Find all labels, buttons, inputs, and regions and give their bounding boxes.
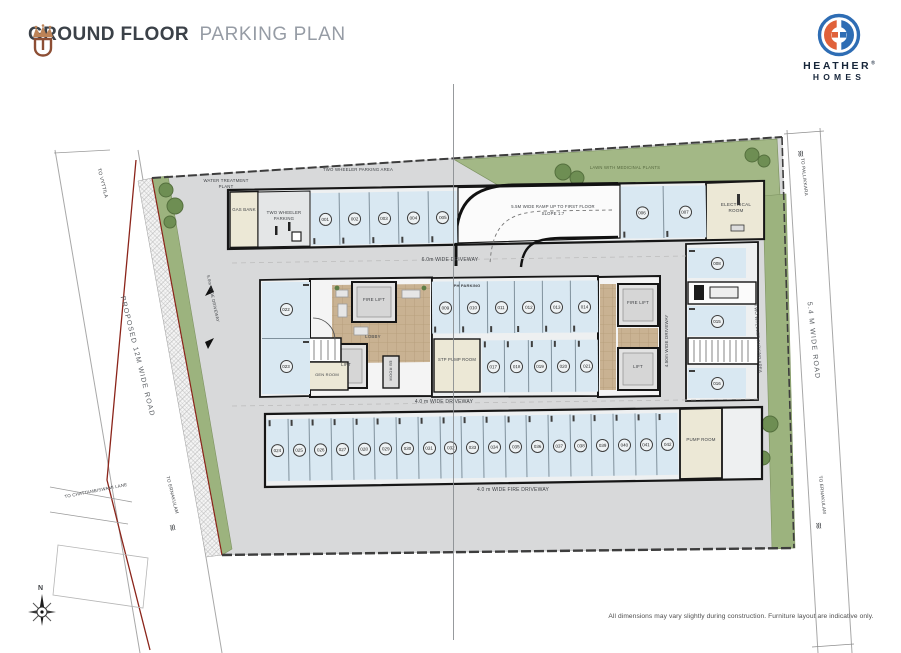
parking-stall-row: 017018019020021: [482, 340, 598, 393]
parking-stall: 026: [309, 418, 332, 480]
parking-stall: 030: [396, 417, 419, 479]
page-title: GROUND FLOOR PARKING PLAN: [28, 24, 346, 46]
stall-number: 031: [423, 441, 436, 454]
parking-stall-row: 009010011012013014: [432, 280, 598, 333]
parking-stall: 004: [398, 191, 428, 243]
parking-stall-row: 001002003004005: [311, 191, 458, 245]
stall-number: 019: [533, 359, 546, 372]
stall-number: 030: [401, 441, 414, 454]
stall-number: 010: [467, 301, 480, 314]
brand-name-line2: HOMES: [791, 72, 887, 82]
ramp-label-line2: SLOPE 1:7: [497, 211, 609, 216]
parking-stall: 038: [569, 414, 592, 476]
parking-stall: 006: [621, 186, 664, 239]
parking-stall: 029: [374, 417, 397, 479]
stall-number: 008: [711, 257, 724, 270]
stall-number: 038: [574, 439, 587, 452]
parking-stall: 022: [262, 282, 310, 338]
stall-number: 039: [596, 438, 609, 451]
parking-stall: 031: [417, 417, 440, 479]
two-wheeler-area-label: TWO WHEELER PARKING AREA: [314, 167, 402, 173]
road-break-icon: ≋: [794, 149, 806, 158]
parking-stall-row: 008: [688, 248, 746, 278]
disclaimer-text: All dimensions may vary slightly during …: [596, 613, 886, 622]
parking-stall: 021: [574, 340, 598, 392]
stall-number: 017: [487, 360, 500, 373]
heather-homes-logo-icon: [816, 12, 862, 58]
parking-stall: 034: [482, 416, 505, 478]
brand-name: HEATHER®: [791, 60, 887, 72]
parking-stall: 017: [482, 340, 505, 392]
parking-stall: 009: [432, 281, 459, 333]
stall-number: 016: [711, 377, 724, 390]
stall-number: 002: [348, 212, 361, 225]
parking-stall: 027: [331, 418, 354, 480]
stall-number: 023: [280, 360, 293, 373]
stall-number: 037: [553, 439, 566, 452]
stall-number: 028: [358, 442, 371, 455]
brand-block: HEATHER® HOMES: [791, 12, 887, 82]
stall-number: 042: [661, 437, 674, 450]
lift-2-label: LIFT: [617, 364, 659, 370]
stall-number: 014: [578, 300, 591, 313]
water-treatment-label: WATER TREATMENT PLANT: [198, 178, 254, 189]
parking-stall: 015: [688, 306, 746, 336]
parking-stall: 001: [311, 193, 340, 245]
parking-stall-row: 0240250260270280290300310320330340350360…: [267, 413, 679, 481]
stall-number: 007: [678, 205, 691, 218]
stall-number: 035: [509, 440, 522, 453]
parking-stall: 042: [656, 413, 679, 475]
parking-stall-row: 015: [688, 306, 746, 336]
stall-number: 040: [618, 438, 631, 451]
parking-stall-row: 016: [688, 368, 746, 398]
parking-stall: 032: [439, 416, 462, 478]
page-fold-line: [453, 84, 454, 640]
stall-number: 033: [466, 440, 479, 453]
stall-number: 034: [488, 440, 501, 453]
stall-number: 013: [550, 300, 563, 313]
stall-number: 021: [580, 359, 593, 372]
parking-stall-row: 022023: [262, 282, 310, 394]
stall-number: 011: [495, 301, 508, 314]
parking-stall: 002: [339, 192, 369, 244]
compass-north-label: N: [38, 584, 43, 593]
eb-room-label: EB ROOM: [388, 357, 393, 385]
stall-number: 029: [379, 442, 392, 455]
lobby-label: LOBBY: [356, 334, 390, 340]
parking-stall: 036: [526, 415, 549, 477]
lawn-label: LAWN WITH MEDICINAL PLANTS: [580, 165, 670, 170]
stall-number: 024: [271, 443, 284, 456]
parking-stall: 018: [504, 340, 528, 392]
stall-number: 009: [439, 301, 452, 314]
parking-stall: 028: [352, 418, 375, 480]
driveway-cross-label: 4.50m WIDE DRIVEWAY: [664, 304, 670, 378]
two-wheeler-parking-label: TWO WHEELER PARKING: [261, 210, 307, 221]
compass-rose-icon: [28, 594, 56, 626]
fire-lift-1-label: FIRE LIFT: [355, 297, 393, 303]
stall-number: 018: [510, 360, 523, 373]
parking-stall: 041: [634, 413, 657, 475]
stall-number: 005: [436, 210, 449, 223]
brochure-page: GROUND FLOOR PARKING PLAN HEATHER® HOMES…: [0, 0, 901, 653]
parking-stall: 033: [461, 416, 484, 478]
fire-lift-2-label: FIRE LIFT: [617, 300, 659, 306]
registered-mark: ®: [871, 61, 875, 67]
parking-stall: 040: [612, 413, 635, 475]
driveway-top-label: 6.0m WIDE DRIVEWAY: [398, 257, 502, 264]
stall-number: 004: [407, 211, 420, 224]
stall-number: 003: [377, 211, 390, 224]
pump-room-label: PUMP ROOM: [682, 437, 720, 443]
driveway-middle-label: 4.0 m WIDE DRIVEWAY: [392, 399, 496, 406]
parking-stall: 037: [547, 414, 570, 476]
parking-stall: 014: [570, 280, 598, 332]
gen-room-label: GEN ROOM: [306, 372, 348, 377]
parking-stall-row: 006007: [621, 185, 707, 238]
stall-number: 026: [314, 443, 327, 456]
parking-stall: 019: [528, 340, 552, 392]
parking-stall: 039: [591, 414, 614, 476]
stall-number: 015: [711, 315, 724, 328]
stall-number: 006: [635, 206, 648, 219]
parking-stall: 008: [688, 248, 746, 278]
stall-number: 001: [319, 212, 332, 225]
title-secondary: PARKING PLAN: [199, 24, 345, 45]
fire-driveway-label: 4.0 m WIDE FIRE DRIVEWAY: [455, 487, 571, 494]
stall-number: 012: [522, 300, 535, 313]
parking-stall: 011: [486, 281, 514, 333]
stall-number: 041: [639, 438, 652, 451]
electrical-room-label: ELECTRICAL ROOM: [714, 202, 758, 214]
crown-logo-icon: [28, 24, 58, 57]
stp-pump-room-label: STP PUMP ROOM: [436, 357, 478, 362]
parking-stall: 024: [267, 419, 289, 481]
gas-bank-label: GAS BANK: [229, 207, 259, 213]
lift-1-label: LIFT: [328, 362, 364, 368]
stall-number: 020: [557, 359, 570, 372]
ramp-label-line1: 5.5M WIDE RAMP UP TO FIRST FLOOR: [497, 204, 609, 209]
parking-stall: 012: [514, 281, 542, 333]
parking-stall: 003: [368, 192, 398, 244]
parking-stall: 010: [459, 281, 487, 333]
page-header: GROUND FLOOR PARKING PLAN: [28, 24, 346, 46]
parking-stall: 007: [663, 185, 707, 238]
parking-stall: 016: [688, 368, 746, 398]
road-break-icon: ≋: [812, 521, 824, 530]
parking-stall: 020: [551, 340, 575, 392]
parking-stall: 025: [287, 419, 310, 481]
stall-number: 032: [444, 441, 457, 454]
stall-number: 036: [531, 439, 544, 452]
parking-stall: 023: [262, 338, 310, 395]
parking-stall: 013: [542, 281, 570, 333]
stall-number: 025: [292, 443, 305, 456]
parking-stall: 035: [504, 415, 527, 477]
stall-number: 027: [336, 442, 349, 455]
stall-number: 022: [280, 303, 293, 316]
